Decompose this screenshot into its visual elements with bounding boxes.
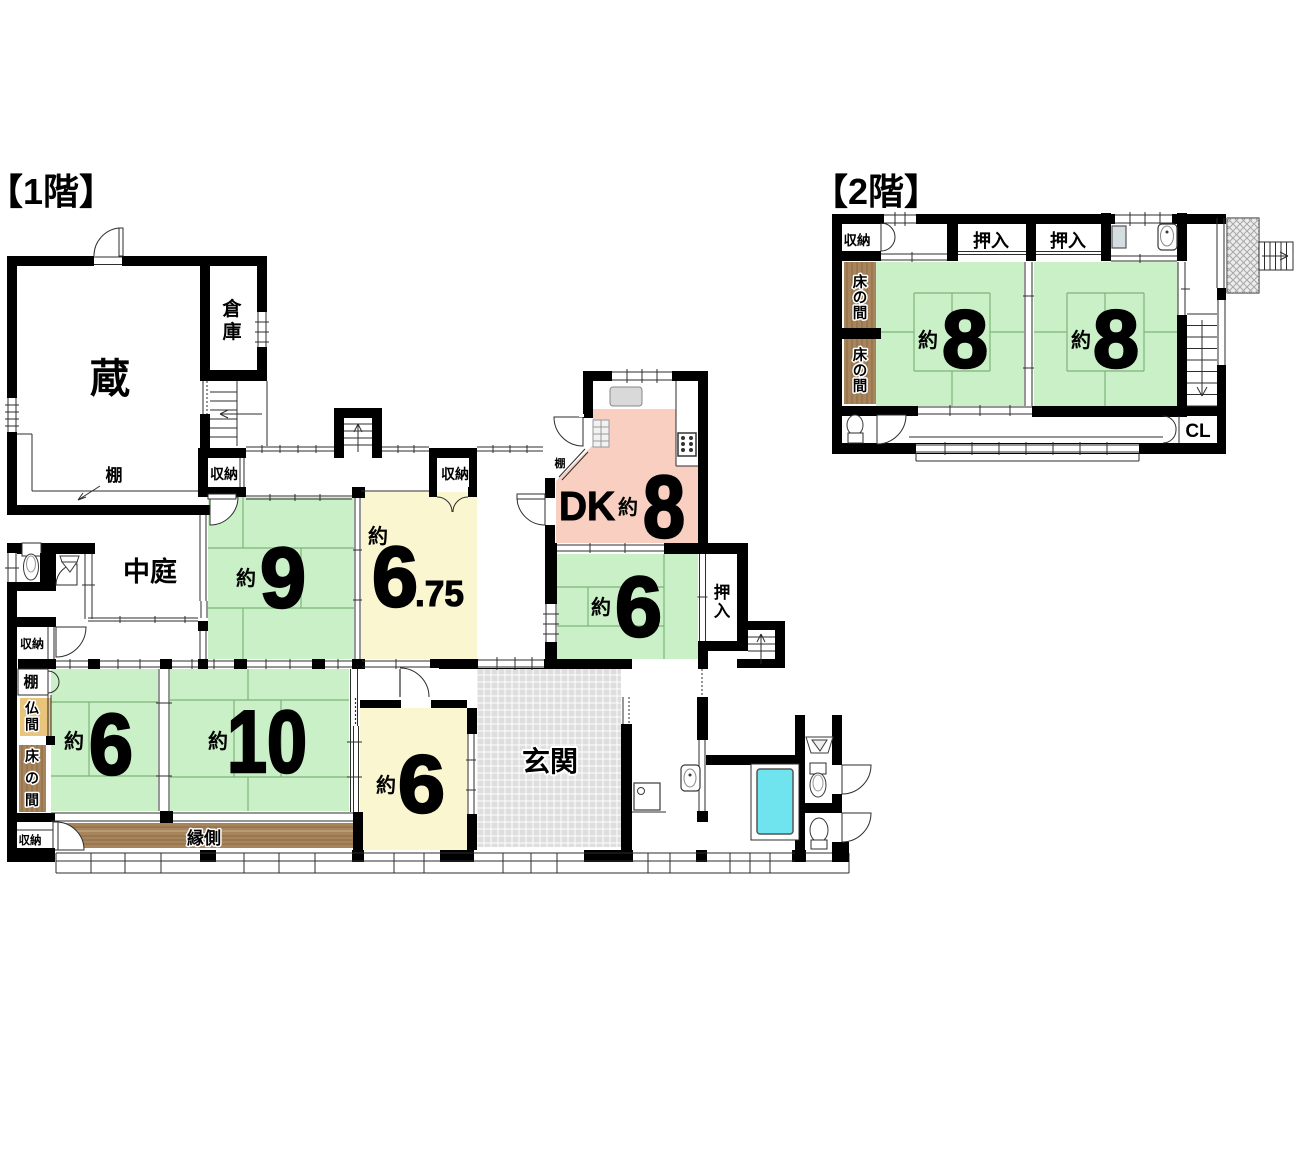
svg-text:収納: 収納 — [844, 232, 871, 248]
svg-text:間: 間 — [25, 717, 39, 733]
svg-text:床: 床 — [853, 346, 868, 364]
svg-text:約: 約 — [376, 773, 396, 797]
svg-text:【2階】: 【2階】 — [812, 171, 940, 212]
svg-text:8: 8 — [942, 294, 988, 385]
svg-text:8: 8 — [1093, 294, 1139, 385]
svg-text:約: 約 — [64, 729, 84, 753]
svg-text:約: 約 — [236, 566, 256, 590]
svg-text:約: 約 — [591, 595, 611, 619]
svg-text:棚: 棚 — [555, 456, 566, 470]
svg-text:仏: 仏 — [25, 700, 39, 716]
svg-text:【1階】: 【1階】 — [0, 171, 115, 212]
svg-text:押入: 押入 — [973, 230, 1009, 251]
svg-text:入: 入 — [714, 602, 731, 621]
svg-text:蔵: 蔵 — [90, 357, 130, 401]
svg-text:間: 間 — [853, 378, 868, 395]
svg-text:間: 間 — [25, 792, 39, 808]
svg-text:6: 6 — [615, 560, 662, 655]
svg-text:中庭: 中庭 — [123, 556, 177, 587]
svg-text:収納: 収納 — [441, 466, 469, 482]
svg-text:押入: 押入 — [1050, 230, 1086, 251]
svg-text:8: 8 — [643, 457, 685, 556]
svg-text:収納: 収納 — [210, 466, 238, 482]
svg-text:約: 約 — [618, 495, 638, 519]
svg-text:約: 約 — [1071, 328, 1091, 352]
svg-text:約: 約 — [918, 328, 938, 352]
svg-text:DK: DK — [559, 483, 615, 529]
svg-text:9: 9 — [260, 531, 306, 626]
svg-text:6: 6 — [372, 530, 418, 625]
svg-text:の: の — [853, 291, 868, 307]
svg-text:10: 10 — [227, 692, 307, 791]
svg-text:の: の — [25, 770, 39, 786]
svg-text:の: の — [853, 364, 868, 380]
svg-text:押: 押 — [714, 582, 731, 602]
svg-text:玄関: 玄関 — [522, 745, 578, 777]
svg-text:6: 6 — [89, 697, 133, 793]
svg-text:6: 6 — [398, 739, 445, 830]
svg-text:棚: 棚 — [23, 673, 38, 691]
svg-text:庫: 庫 — [222, 320, 241, 343]
svg-text:約: 約 — [208, 729, 228, 753]
svg-text:床: 床 — [853, 273, 868, 291]
svg-text:床: 床 — [25, 748, 40, 764]
svg-text:棚: 棚 — [106, 465, 123, 485]
svg-text:縁側: 縁側 — [187, 828, 221, 848]
svg-text:間: 間 — [853, 305, 868, 322]
svg-text:収納: 収納 — [20, 636, 44, 651]
svg-text:CL: CL — [1185, 421, 1211, 442]
svg-text:.75: .75 — [415, 573, 464, 614]
svg-text:倉: 倉 — [221, 297, 242, 320]
svg-text:収納: 収納 — [19, 833, 42, 847]
